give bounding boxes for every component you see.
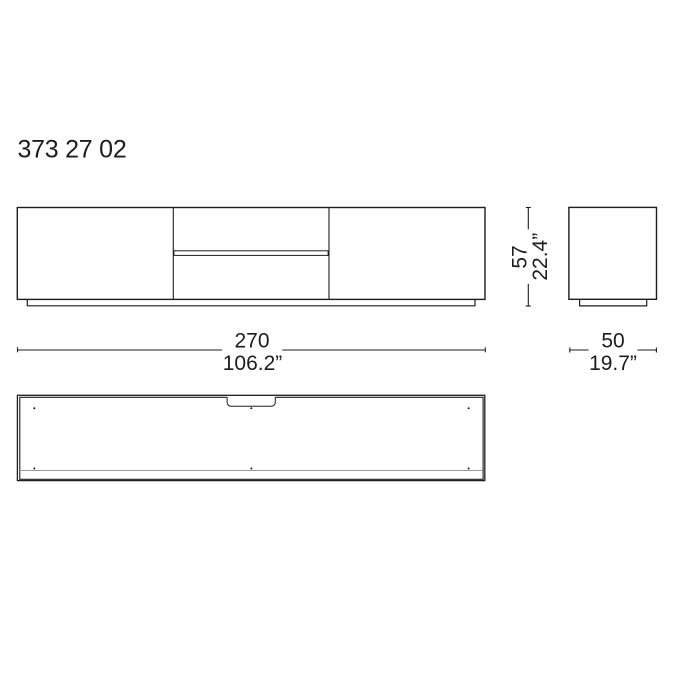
svg-text:22.4”: 22.4” <box>529 233 552 281</box>
svg-text:50: 50 <box>601 329 624 352</box>
svg-text:19.7”: 19.7” <box>589 352 637 375</box>
svg-text:270: 270 <box>234 329 269 352</box>
svg-text:106.2”: 106.2” <box>223 352 283 375</box>
svg-text:57: 57 <box>508 245 531 268</box>
svg-text:373 27 02: 373 27 02 <box>18 136 127 164</box>
